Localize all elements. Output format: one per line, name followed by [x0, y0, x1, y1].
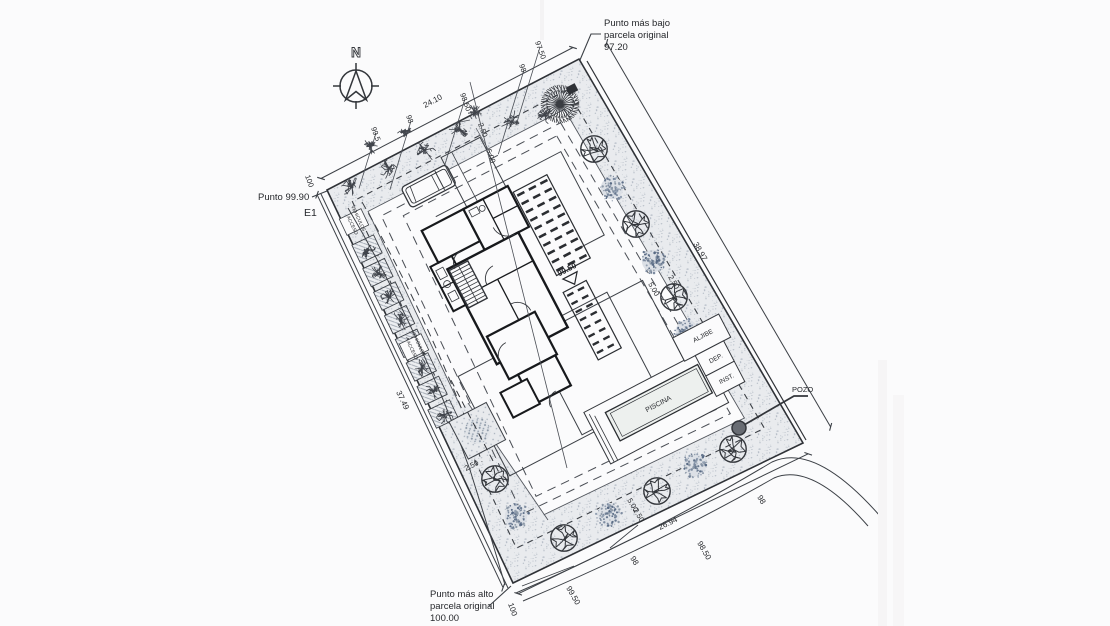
svg-text:E1: E1	[304, 207, 317, 219]
svg-text:parcela original: parcela original	[430, 601, 494, 612]
svg-text:Punto más alto: Punto más alto	[430, 589, 493, 600]
svg-text:Punto 99.90: Punto 99.90	[258, 192, 309, 203]
svg-text:POZO: POZO	[792, 385, 813, 394]
svg-text:N: N	[351, 45, 361, 60]
svg-text:100.00: 100.00	[430, 613, 459, 624]
svg-text:97.20: 97.20	[604, 42, 628, 53]
svg-text:parcela original: parcela original	[604, 30, 668, 41]
svg-text:Punto más bajo: Punto más bajo	[604, 18, 670, 29]
